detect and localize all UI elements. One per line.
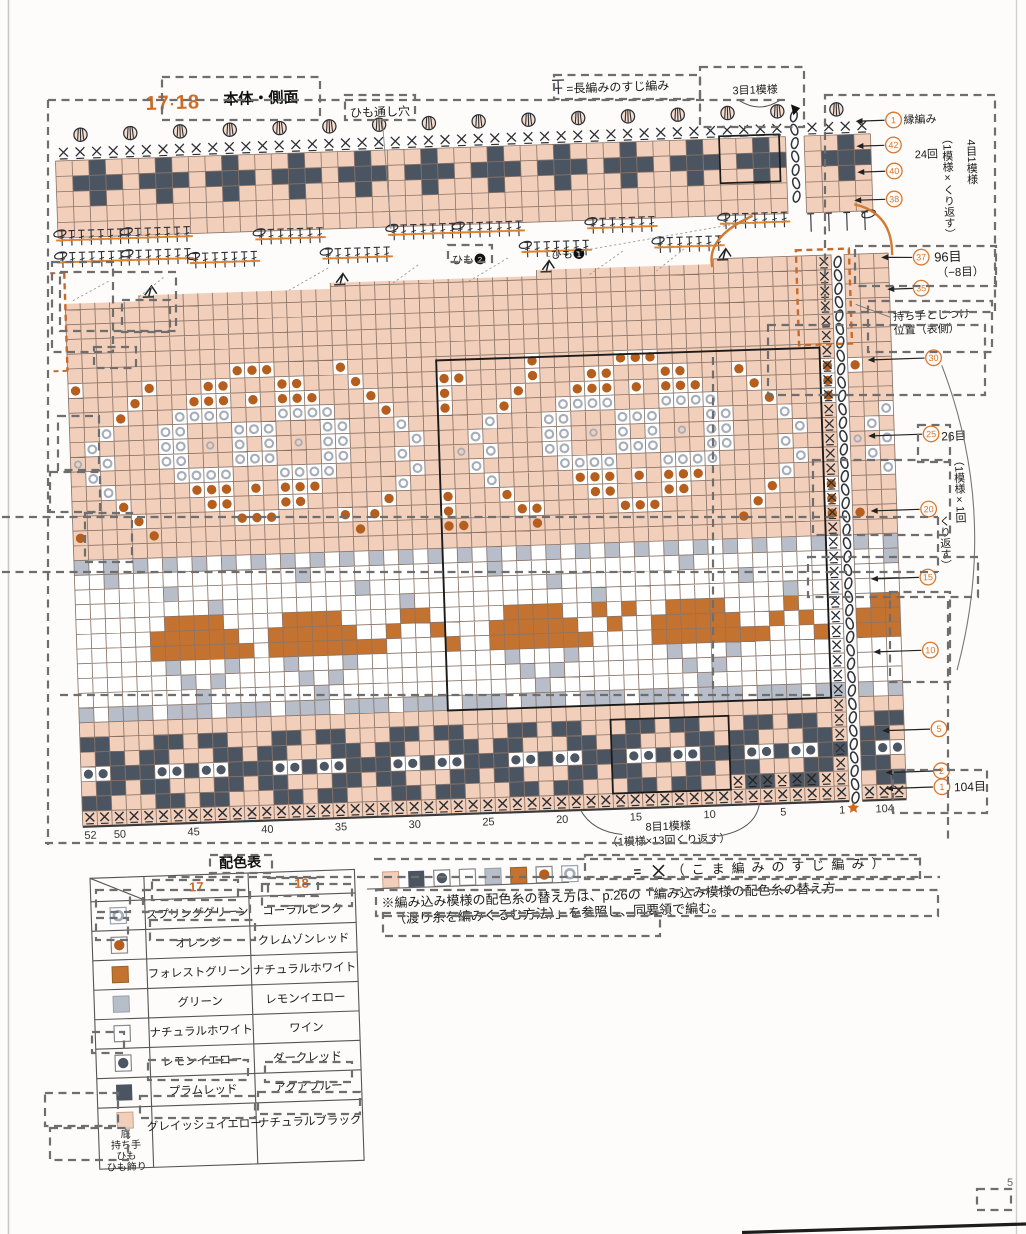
- svg-text:グリーン: グリーン: [177, 994, 223, 1010]
- svg-text:10: 10: [703, 809, 716, 821]
- svg-text:5: 5: [936, 724, 941, 734]
- svg-text:縁編み: 縁編み: [903, 112, 936, 127]
- svg-text:104目: 104目: [954, 779, 986, 794]
- svg-text:持ち手: 持ち手: [111, 1138, 141, 1152]
- svg-text:3目1模様: 3目1模様: [732, 82, 778, 98]
- svg-text:1: 1: [939, 782, 944, 792]
- svg-text:くり返す）: くり返す）: [938, 515, 952, 570]
- svg-text:本体・側面: 本体・側面: [223, 88, 299, 109]
- svg-text:42: 42: [888, 140, 898, 150]
- svg-text:35: 35: [916, 283, 926, 293]
- svg-text:40: 40: [889, 166, 899, 176]
- svg-text:1: 1: [839, 804, 846, 816]
- svg-text:ひも: ひも: [452, 253, 474, 267]
- svg-text:30: 30: [408, 819, 421, 831]
- svg-text:コーラルピンク: コーラルピンク: [262, 902, 343, 918]
- svg-text:40: 40: [261, 824, 274, 836]
- svg-text:35: 35: [335, 821, 348, 833]
- svg-text:24回: 24回: [915, 148, 939, 162]
- svg-text:15: 15: [630, 811, 643, 823]
- svg-text:1: 1: [891, 115, 896, 125]
- svg-text:38: 38: [889, 194, 899, 204]
- svg-text:30: 30: [928, 353, 938, 363]
- svg-text:底: 底: [120, 1127, 130, 1140]
- svg-text:104: 104: [875, 803, 894, 816]
- svg-text:50: 50: [114, 829, 127, 841]
- svg-text:96目: 96目: [934, 249, 962, 265]
- svg-text:オレンジ: オレンジ: [175, 936, 221, 951]
- svg-text:17: 17: [189, 879, 204, 894]
- svg-text:ひも: ひも: [551, 248, 573, 262]
- svg-text:25: 25: [926, 429, 936, 439]
- svg-text:配色表: 配色表: [219, 854, 263, 871]
- svg-text:52: 52: [84, 830, 97, 842]
- svg-text:ワイン: ワイン: [289, 1022, 324, 1035]
- svg-text:8目1模様: 8目1模様: [645, 818, 691, 834]
- svg-text:15: 15: [923, 572, 933, 582]
- svg-text:25: 25: [482, 816, 495, 828]
- svg-text:10: 10: [925, 645, 935, 655]
- svg-text:20: 20: [923, 504, 933, 514]
- svg-text:5: 5: [780, 806, 787, 818]
- svg-text:（−8目）: （−8目）: [936, 265, 984, 280]
- svg-text:20: 20: [556, 814, 569, 826]
- svg-text:45: 45: [187, 826, 200, 838]
- svg-text:5: 5: [1007, 1177, 1013, 1189]
- svg-text:37: 37: [916, 252, 926, 262]
- svg-text:ひも通し穴: ひも通し穴: [350, 103, 410, 120]
- svg-text:4目1模様: 4目1模様: [964, 139, 978, 185]
